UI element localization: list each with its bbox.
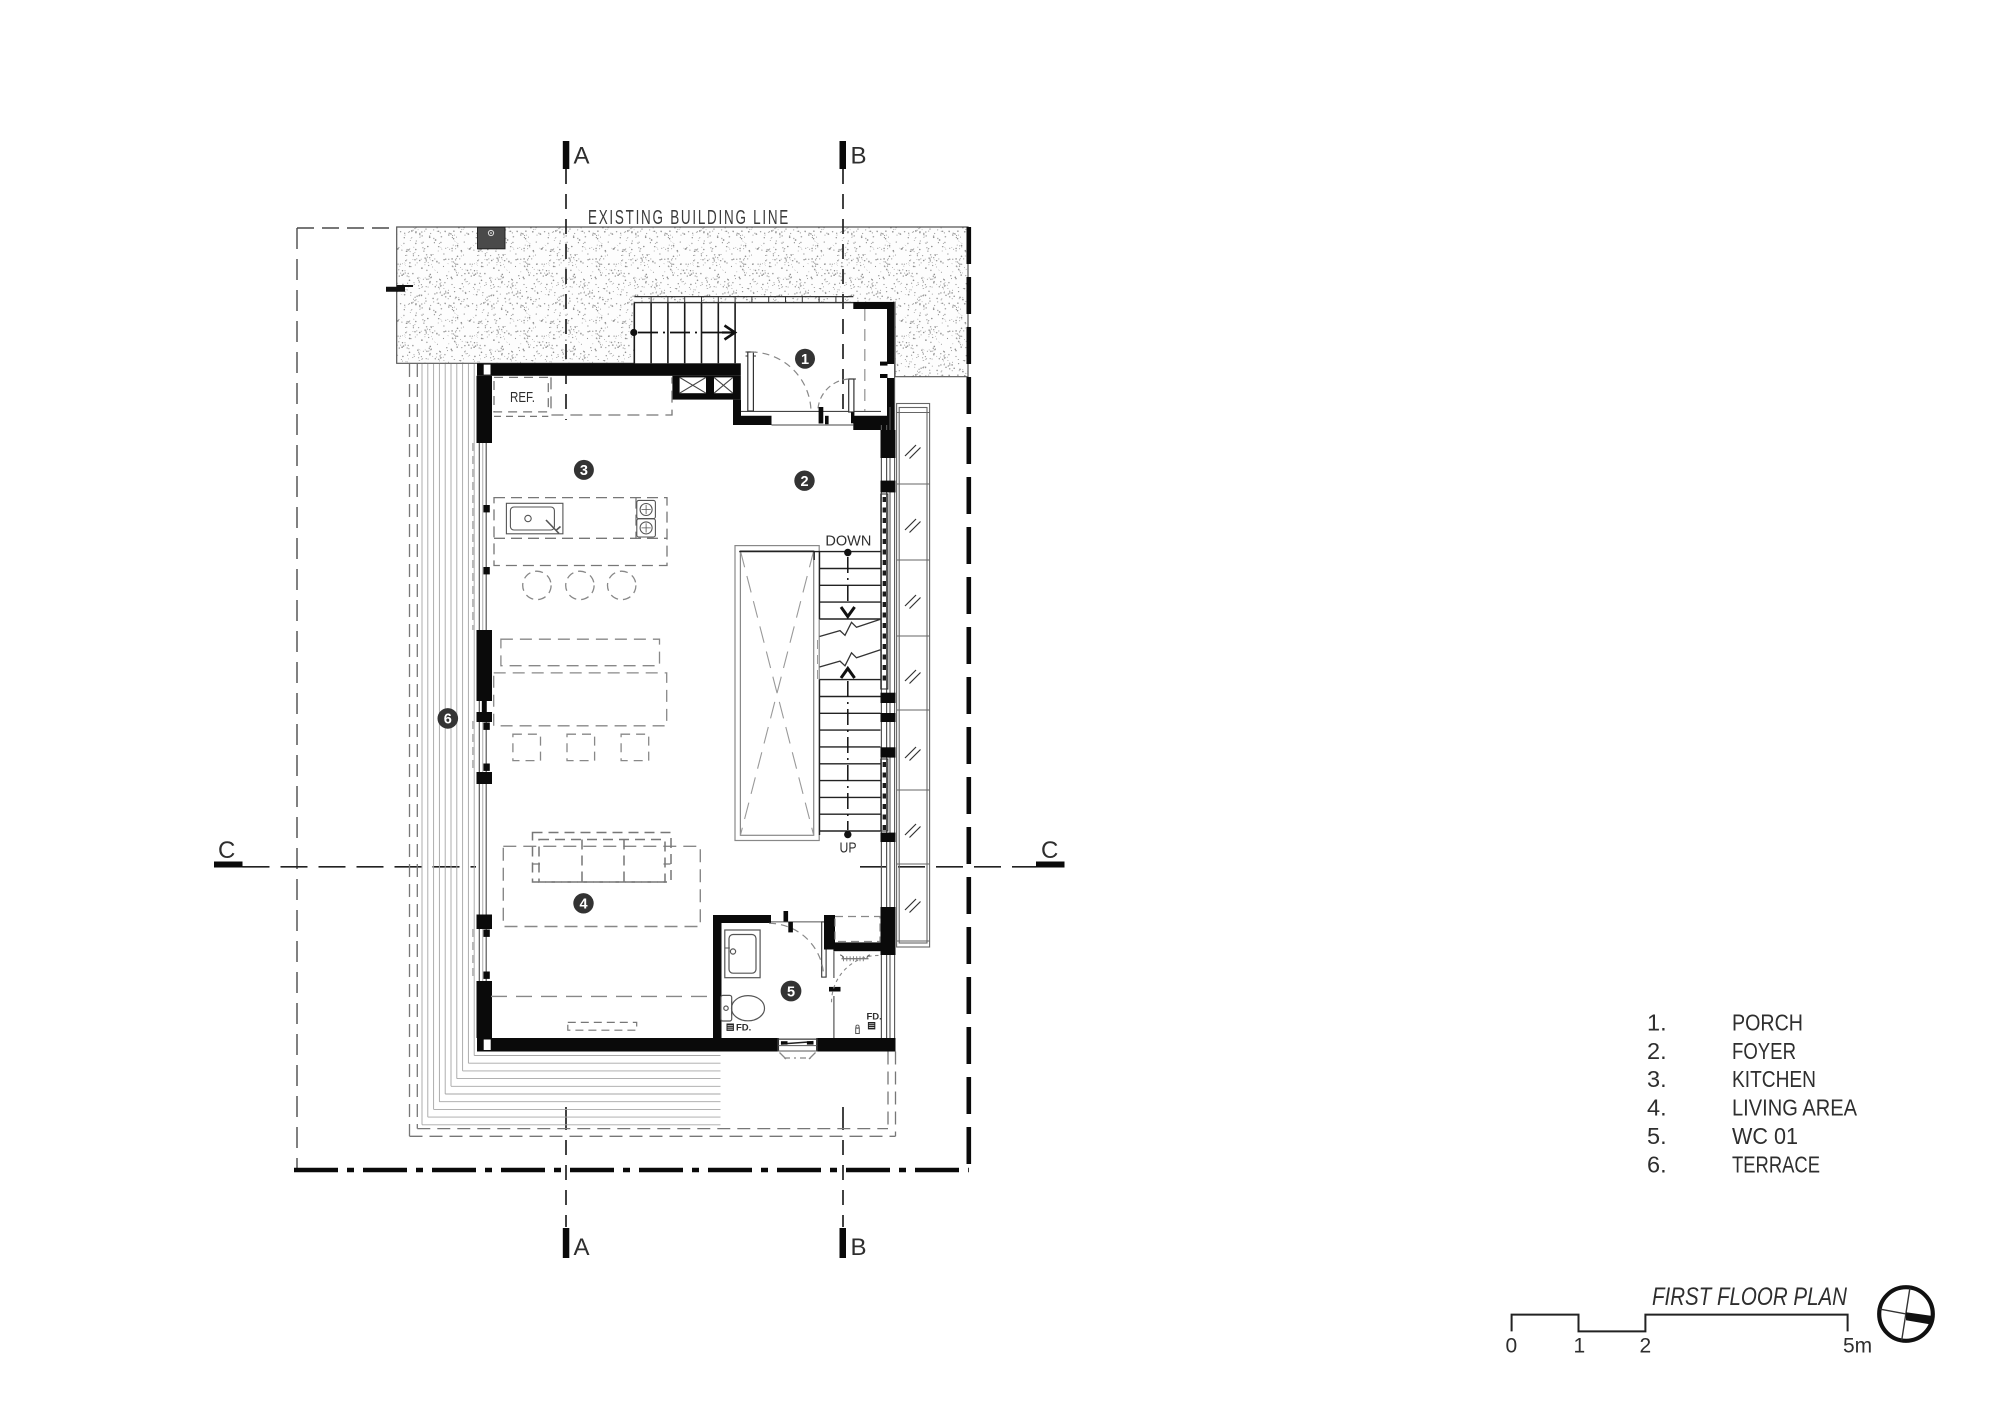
- svg-text:PORCH: PORCH: [1732, 1010, 1803, 1036]
- svg-text:C: C: [218, 837, 235, 864]
- svg-text:DOWN: DOWN: [825, 534, 871, 550]
- svg-text:FD.: FD.: [736, 1023, 751, 1034]
- svg-text:TERRACE: TERRACE: [1732, 1151, 1820, 1177]
- svg-text:FIRST FLOOR PLAN: FIRST FLOOR PLAN: [1652, 1283, 1848, 1311]
- svg-text:3.: 3.: [1647, 1066, 1667, 1092]
- svg-text:1: 1: [801, 352, 809, 368]
- svg-text:6: 6: [444, 712, 452, 728]
- svg-text:2: 2: [800, 474, 808, 490]
- svg-text:2: 2: [1640, 1335, 1652, 1358]
- svg-text:4.: 4.: [1647, 1095, 1667, 1121]
- svg-text:KITCHEN: KITCHEN: [1732, 1066, 1816, 1092]
- svg-text:A: A: [574, 1234, 590, 1261]
- svg-text:1.: 1.: [1647, 1010, 1667, 1036]
- svg-text:6.: 6.: [1647, 1151, 1667, 1177]
- svg-text:FOYER: FOYER: [1732, 1038, 1796, 1064]
- svg-text:EXISTING BUILDING LINE: EXISTING BUILDING LINE: [588, 207, 790, 229]
- svg-text:1: 1: [1574, 1335, 1586, 1358]
- svg-text:4: 4: [579, 897, 587, 913]
- svg-text:B: B: [851, 1234, 867, 1261]
- svg-text:5: 5: [787, 984, 795, 1000]
- svg-text:WC 01: WC 01: [1732, 1123, 1798, 1149]
- svg-text:B: B: [851, 143, 867, 170]
- svg-text:5m: 5m: [1843, 1335, 1872, 1358]
- svg-text:0: 0: [1506, 1335, 1518, 1358]
- svg-text:A: A: [574, 143, 590, 170]
- svg-text:C: C: [1041, 837, 1058, 864]
- svg-text:2.: 2.: [1647, 1038, 1667, 1064]
- svg-text:5.: 5.: [1647, 1123, 1667, 1149]
- svg-text:UP: UP: [840, 841, 857, 857]
- svg-text:FD.: FD.: [867, 1012, 882, 1023]
- svg-text:3: 3: [580, 463, 588, 479]
- svg-text:REF.: REF.: [510, 389, 535, 406]
- svg-text:LIVING AREA: LIVING AREA: [1732, 1095, 1857, 1121]
